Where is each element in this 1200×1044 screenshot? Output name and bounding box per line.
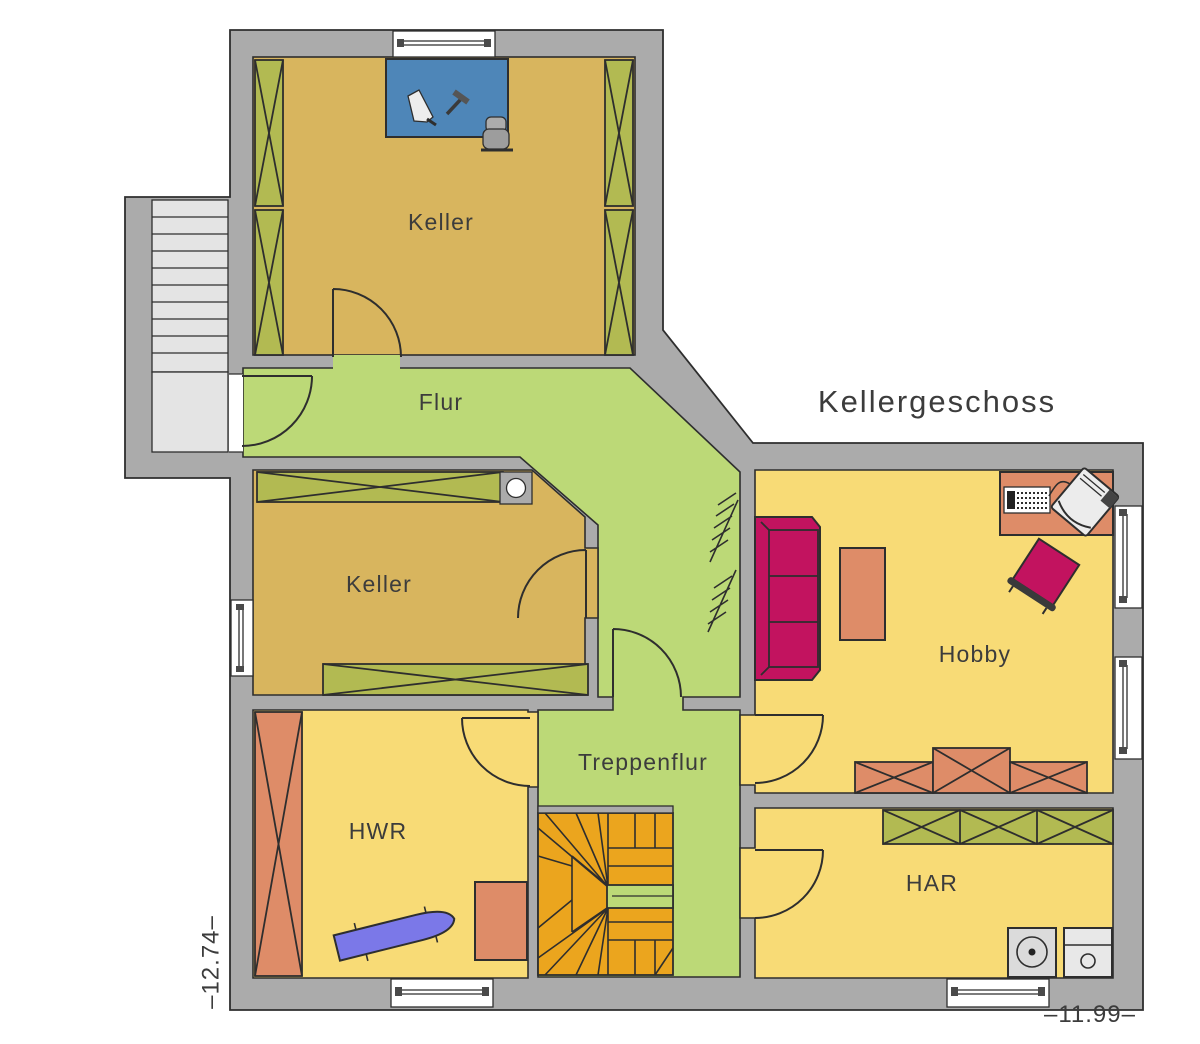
sofa: [755, 517, 820, 680]
cabinet-hwr: [255, 712, 302, 976]
room-keller-mid-floor: [253, 470, 598, 695]
washing-machine: [1008, 928, 1056, 977]
entrance-door-opening: [229, 374, 243, 452]
workbench: [386, 59, 513, 150]
floor-drain: [500, 472, 532, 504]
shelf-keller-mid-top: [257, 472, 503, 502]
window-hobby-lower: [1115, 657, 1142, 759]
floor-plan-drawing: Keller Flur Kellergeschoss Keller Hobby …: [0, 0, 1200, 1044]
room-label-treppenflur: Treppenflur: [578, 749, 708, 775]
level-label-left: –12.74–: [197, 915, 224, 1009]
exterior-stairs: [152, 200, 228, 452]
window-hwr: [391, 979, 493, 1007]
room-label-hwr: HWR: [349, 818, 408, 844]
window-keller-top: [393, 31, 495, 57]
shelf-keller-mid-bottom: [323, 664, 588, 695]
floor-title: Kellergeschoss: [818, 384, 1056, 419]
room-label-keller-top: Keller: [408, 209, 474, 235]
room-label-hobby: Hobby: [939, 641, 1011, 667]
floor-plan-page: Keller Flur Kellergeschoss Keller Hobby …: [0, 0, 1200, 1044]
room-label-keller-mid: Keller: [346, 571, 412, 597]
level-label-bottom-right: –11.99–: [1044, 1001, 1136, 1028]
keyboard: [1004, 487, 1050, 513]
room-label-flur: Flur: [419, 389, 463, 415]
freezer: [475, 882, 527, 960]
window-har: [947, 979, 1049, 1007]
shelf-har: [883, 810, 1113, 844]
window-hobby-upper: [1115, 506, 1142, 608]
window-keller-mid: [231, 600, 253, 676]
sink-unit: [1064, 928, 1112, 977]
keller-top-door-gap: [333, 355, 400, 369]
coffee-table: [840, 548, 885, 640]
staircase: [538, 806, 673, 975]
stair-landing: [152, 372, 228, 452]
room-label-har: HAR: [906, 870, 958, 896]
